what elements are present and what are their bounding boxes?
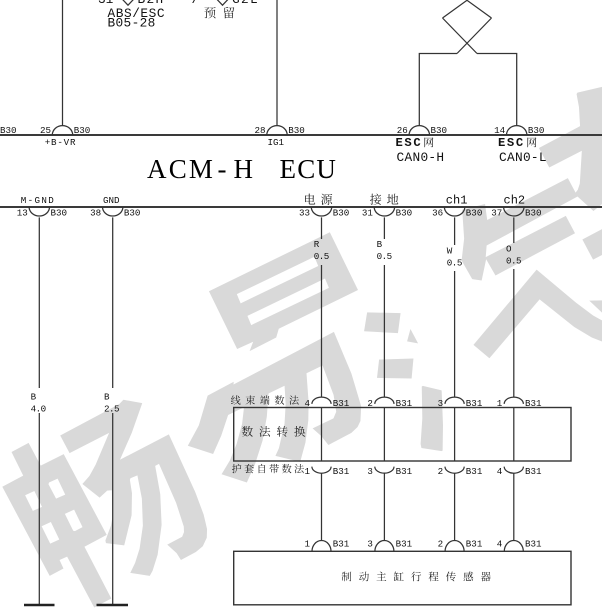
svg-text:-: - (218, 154, 227, 184)
svg-text:1: 1 (497, 398, 503, 409)
svg-text:B31: B31 (466, 538, 483, 549)
svg-text:2.5: 2.5 (104, 404, 119, 415)
svg-text:B30: B30 (528, 125, 545, 136)
svg-text:B30: B30 (431, 125, 448, 136)
svg-text:B30: B30 (333, 207, 350, 218)
svg-text:28: 28 (254, 125, 265, 136)
svg-text:B31: B31 (525, 398, 542, 409)
svg-text:W: W (447, 246, 453, 257)
svg-text:G2L: G2L (232, 0, 259, 7)
svg-text:B31: B31 (396, 538, 413, 549)
svg-text:B: B (377, 239, 383, 250)
svg-text:33: 33 (299, 207, 310, 218)
svg-text:ch1: ch1 (446, 194, 468, 208)
svg-text:1: 1 (304, 538, 310, 549)
svg-text:GND: GND (103, 195, 120, 206)
svg-text:B31: B31 (466, 466, 483, 477)
svg-text:/: / (192, 0, 200, 7)
svg-text:M-GND: M-GND (21, 195, 55, 206)
svg-text:B31: B31 (396, 398, 413, 409)
svg-text:4: 4 (304, 398, 310, 409)
svg-text:ACM: ACM (147, 154, 215, 184)
svg-text:R: R (314, 239, 320, 250)
svg-text:B: B (31, 392, 37, 403)
svg-text:4: 4 (497, 466, 503, 477)
svg-text:1: 1 (304, 466, 310, 477)
svg-text:B31: B31 (333, 538, 350, 549)
svg-text:B30: B30 (525, 207, 542, 218)
svg-text:B30: B30 (51, 207, 68, 218)
svg-text:37: 37 (491, 207, 502, 218)
svg-text:ch2: ch2 (504, 194, 526, 208)
svg-text:H: H (234, 154, 254, 184)
svg-text:0.5: 0.5 (447, 258, 462, 269)
svg-text:0.5: 0.5 (314, 251, 329, 262)
svg-text:B05-28: B05-28 (108, 16, 156, 31)
svg-text:B31: B31 (525, 466, 542, 477)
svg-text:25: 25 (40, 125, 51, 136)
svg-text:38: 38 (90, 207, 101, 218)
svg-text:13: 13 (17, 207, 28, 218)
svg-text:O: O (506, 244, 512, 255)
svg-text:3: 3 (438, 398, 444, 409)
svg-text:26: 26 (397, 125, 408, 136)
svg-text:4: 4 (497, 538, 503, 549)
svg-text:0.5: 0.5 (377, 251, 392, 262)
svg-text:B31: B31 (333, 398, 350, 409)
svg-text:14: 14 (494, 125, 506, 136)
svg-text:CAN0-H: CAN0-H (397, 150, 445, 165)
svg-text:B: B (104, 392, 110, 403)
svg-text:2: 2 (367, 398, 373, 409)
svg-text:B30: B30 (74, 125, 91, 136)
svg-text:B31: B31 (466, 398, 483, 409)
svg-text:B30: B30 (466, 207, 483, 218)
svg-text:B30: B30 (396, 207, 413, 218)
svg-text:ECU: ECU (280, 154, 338, 184)
svg-text:2: 2 (438, 466, 444, 477)
svg-text:+B-VR: +B-VR (45, 137, 77, 148)
svg-text:B30: B30 (0, 125, 17, 136)
svg-text:B31: B31 (396, 466, 413, 477)
svg-text:2: 2 (438, 538, 444, 549)
svg-text:36: 36 (432, 207, 443, 218)
svg-text:ESC: ESC (396, 136, 423, 150)
svg-text:B30: B30 (124, 207, 141, 218)
svg-text:4.0: 4.0 (31, 404, 46, 415)
svg-text:B31: B31 (525, 538, 542, 549)
svg-text:CAN0-L: CAN0-L (499, 150, 547, 165)
svg-text:IG1: IG1 (268, 137, 285, 148)
svg-text:3: 3 (367, 466, 373, 477)
svg-text:3: 3 (367, 538, 373, 549)
svg-text:B31: B31 (333, 466, 350, 477)
svg-text:ESC: ESC (498, 136, 525, 150)
svg-text:31: 31 (362, 207, 374, 218)
svg-text:0.5: 0.5 (506, 256, 521, 267)
svg-text:B30: B30 (288, 125, 305, 136)
